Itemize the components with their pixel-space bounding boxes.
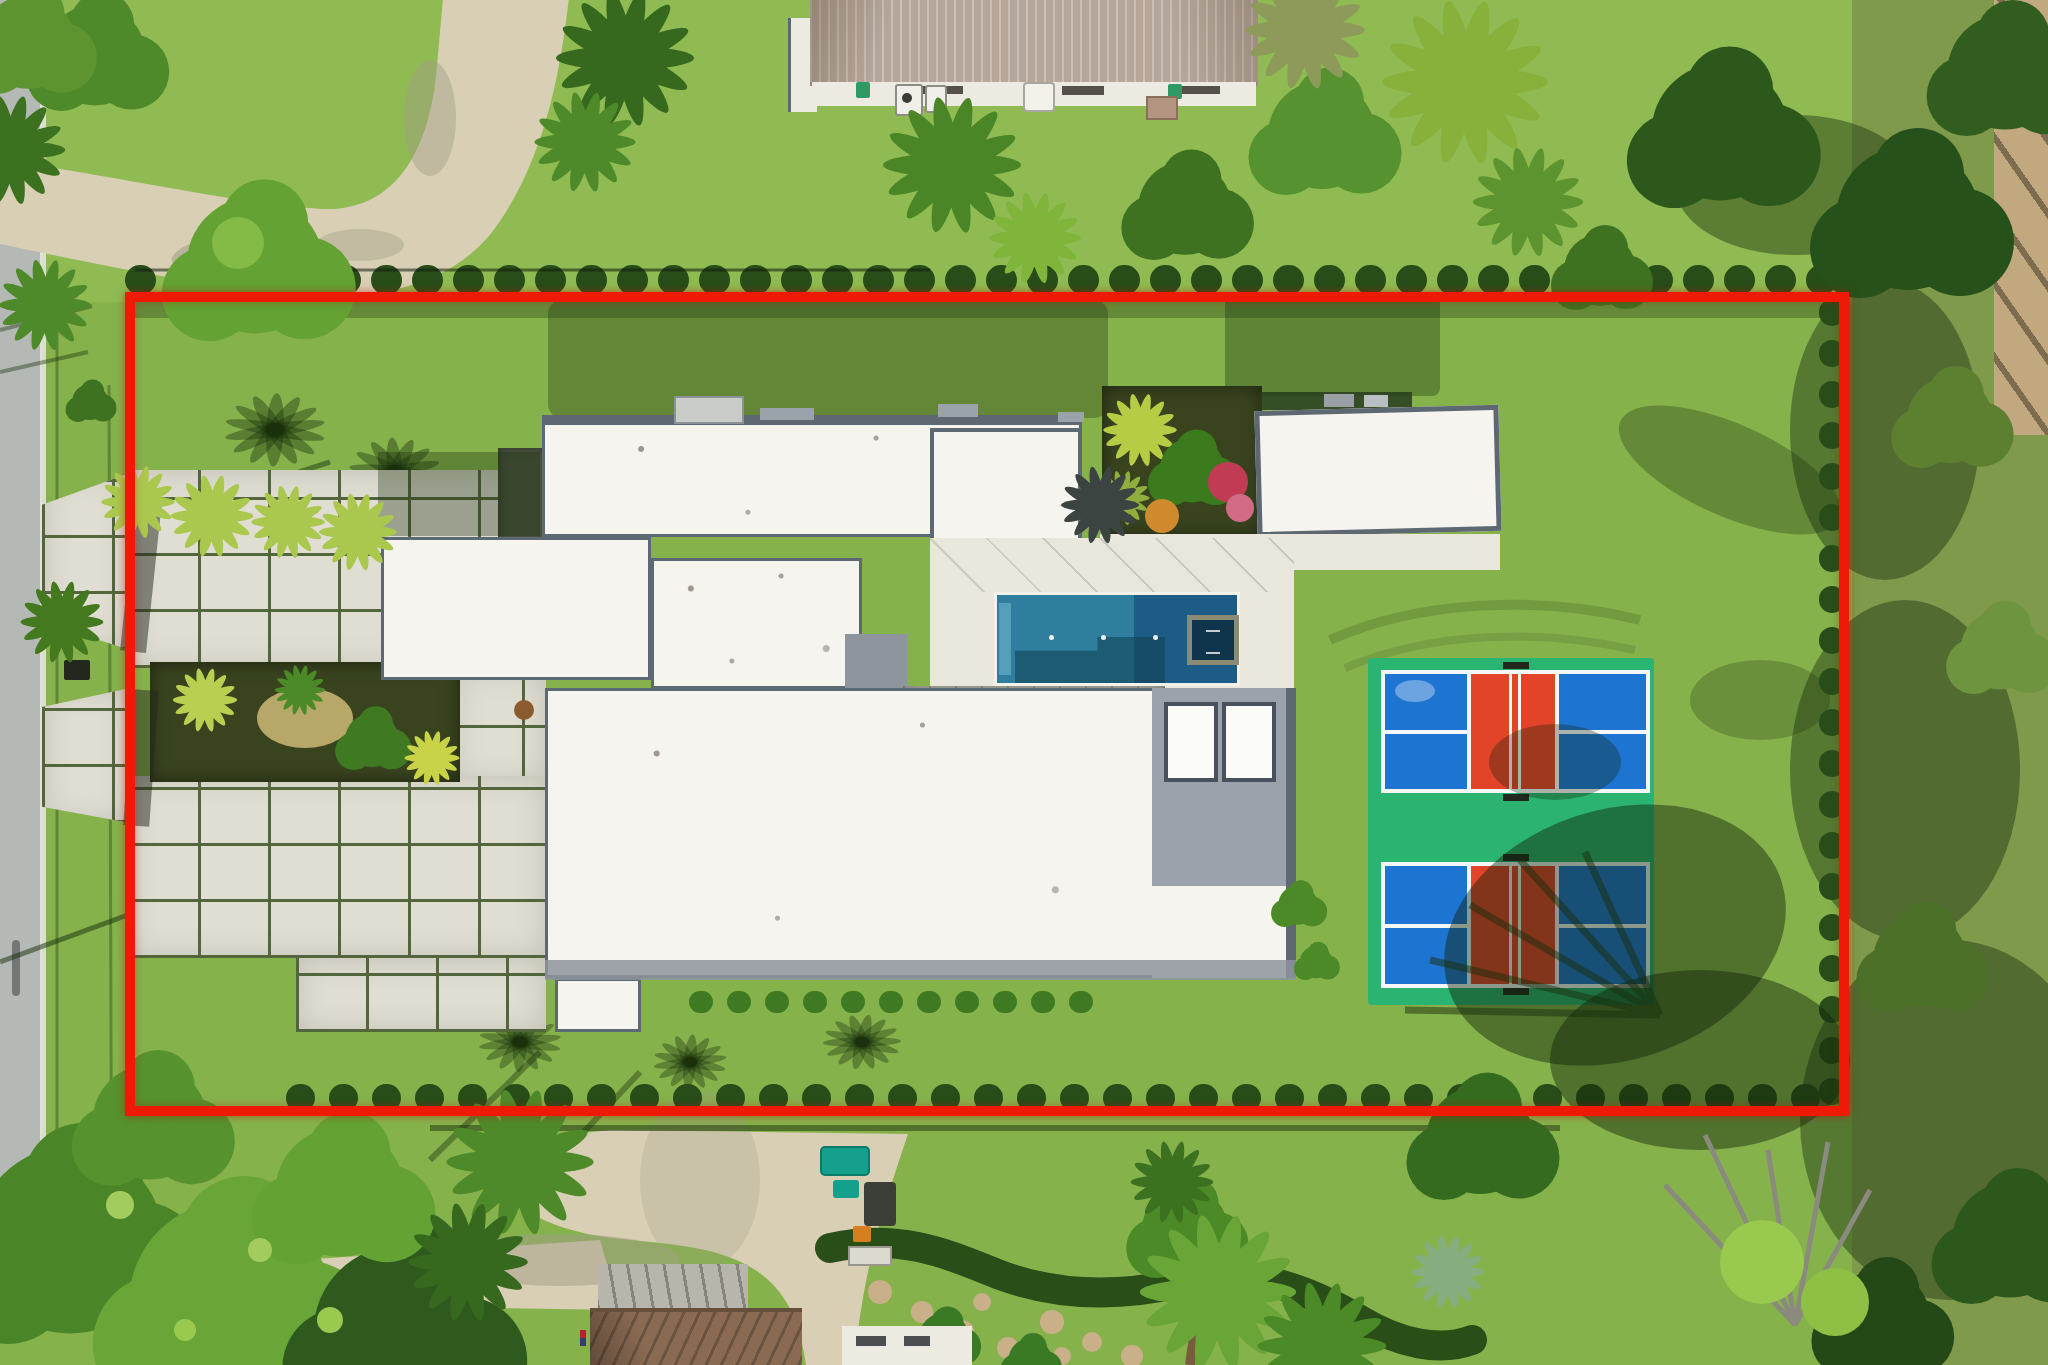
bright-foliage <box>1720 1220 1804 1304</box>
aerial-photo <box>0 0 2048 1365</box>
roadside-palm <box>0 258 91 351</box>
agave-plant <box>1411 1235 1485 1310</box>
bright-foliage <box>1801 1268 1869 1336</box>
roadside-palm <box>21 580 104 664</box>
property-boundary-overlay <box>125 292 1849 1116</box>
small-bush <box>66 380 117 423</box>
